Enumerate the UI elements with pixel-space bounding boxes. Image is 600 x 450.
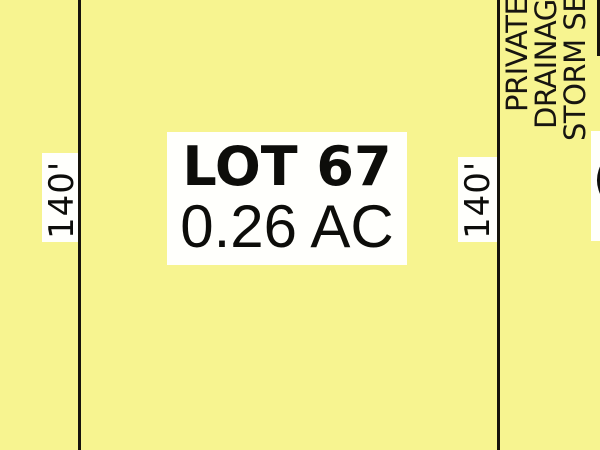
right-dimension-label: 140' xyxy=(461,161,495,239)
lot-area-label: 0.26 AC xyxy=(180,195,394,258)
lot-label-box: LOT 67 0.26 AC xyxy=(167,132,407,265)
easement-label-private: PRIVATE xyxy=(503,0,532,112)
easement-label-storm-sewer: STORM SE xyxy=(561,0,590,141)
plat-map: LOT 67 0.26 AC 140' 140' PRIVATE DRAINAG… xyxy=(0,0,600,450)
easement-label-drainage: DRAINAGE xyxy=(532,0,561,129)
left-dimension-label: 140' xyxy=(45,161,79,239)
lot-number-label: LOT 67 xyxy=(182,139,391,194)
cut-off-label-fragment: ( xyxy=(593,156,600,202)
